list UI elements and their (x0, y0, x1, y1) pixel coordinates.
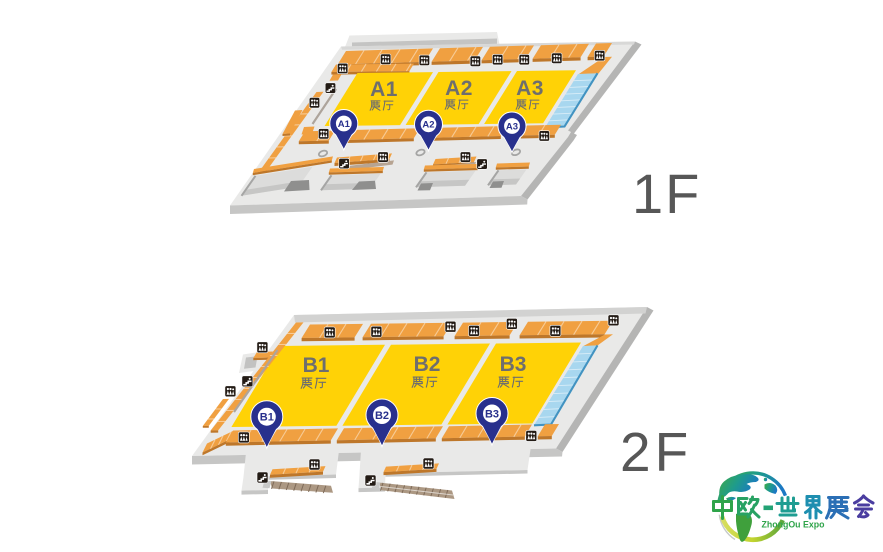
svg-text:B1: B1 (303, 354, 330, 377)
svg-text:A2: A2 (445, 77, 473, 100)
svg-text:B2: B2 (375, 410, 389, 422)
svg-text:A1: A1 (338, 119, 351, 130)
svg-text:2F: 2F (620, 421, 692, 483)
svg-text:A1: A1 (370, 78, 398, 101)
svg-text:A3: A3 (516, 77, 544, 100)
svg-text:B3: B3 (485, 409, 499, 421)
svg-text:A2: A2 (422, 120, 434, 131)
svg-text:ZhongOu Expo: ZhongOu Expo (761, 520, 825, 530)
svg-text:B2: B2 (414, 353, 441, 376)
svg-text:B3: B3 (500, 353, 527, 376)
svg-text:1F: 1F (632, 162, 701, 225)
svg-text:A3: A3 (506, 121, 518, 132)
svg-text:B1: B1 (260, 412, 274, 424)
